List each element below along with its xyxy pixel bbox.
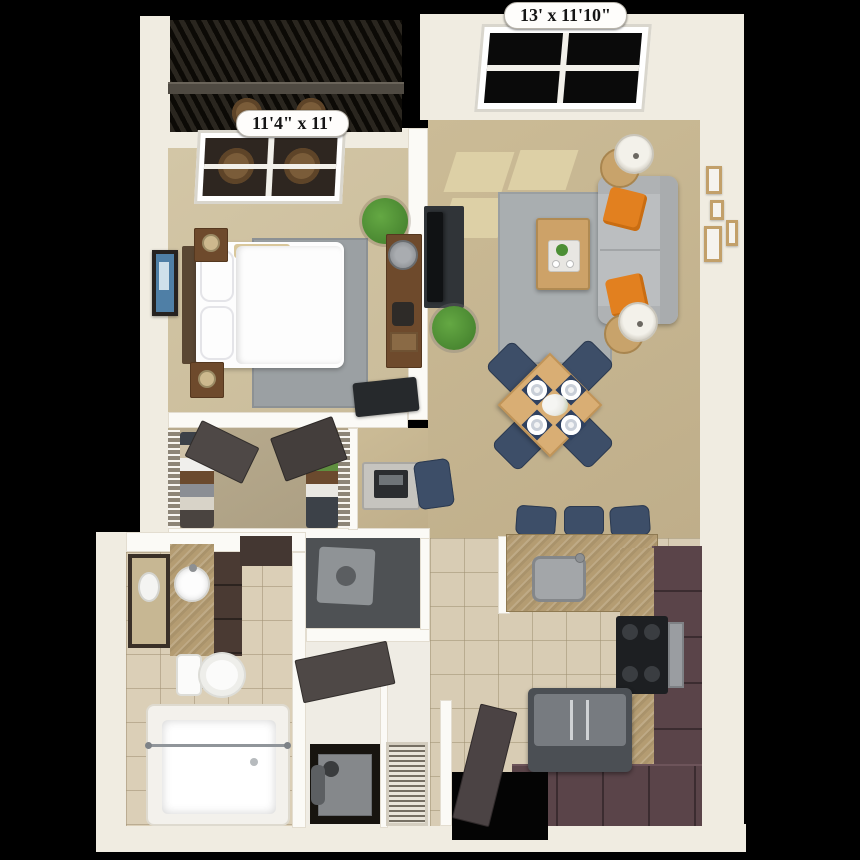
heater-pipe-run <box>311 765 325 805</box>
dinner-plate <box>527 415 547 435</box>
bathtub-drain <box>250 758 258 766</box>
louvered-closet-door <box>386 742 428 826</box>
left-wall-lower <box>96 532 126 828</box>
bottom-wall <box>96 824 746 852</box>
nook-chair <box>413 458 455 511</box>
refrigerator-top <box>534 694 626 746</box>
dresser-lamp <box>388 240 418 270</box>
art-highlight <box>159 262 169 290</box>
hall-west-wall <box>420 538 430 630</box>
wall-frame <box>726 220 738 246</box>
vanity-cabinet-column <box>214 552 242 656</box>
coffee-table <box>536 218 590 290</box>
entry-left-wall <box>440 700 452 826</box>
bedroom-dimension-text: 11'4" x 11' <box>252 113 333 133</box>
bedroom-tv <box>352 377 419 418</box>
living-plant <box>432 306 476 350</box>
living-room-dimension-text: 13' x 11'10" <box>520 5 611 25</box>
rod-end <box>145 742 152 749</box>
balcony-left-wall <box>140 16 170 134</box>
window-mullion <box>204 164 336 169</box>
bar-stool <box>564 506 604 536</box>
refrigerator-handle <box>570 700 573 740</box>
dresser-tray <box>390 332 418 352</box>
bed-pillow <box>200 306 234 360</box>
sofa-backrest <box>660 176 678 324</box>
bedroom-dimension-label: 11'4" x 11' <box>236 110 349 137</box>
bar-stool <box>609 505 651 538</box>
washer-drum <box>335 565 356 586</box>
bathtub <box>146 704 290 826</box>
living-tv <box>427 212 443 302</box>
washer-closet <box>306 538 420 628</box>
bathtub-basin <box>162 720 276 814</box>
wall-frame <box>704 226 722 262</box>
lamp-finial <box>633 153 639 159</box>
washer-lid <box>317 547 376 606</box>
bedroom-wall-art <box>152 250 178 316</box>
kitchen-sink <box>532 556 586 602</box>
bed-duvet <box>236 246 342 364</box>
utility-top-wall <box>306 628 430 642</box>
wall-frame <box>706 166 722 194</box>
balcony-railing <box>168 82 404 94</box>
sofa-cushion-seam <box>600 249 660 251</box>
nightstand-lamp <box>202 234 220 252</box>
water-heater <box>318 754 372 816</box>
lamp-finial <box>637 321 643 327</box>
right-wall <box>700 14 744 852</box>
sink-faucet <box>189 564 197 572</box>
dinner-plate <box>561 415 581 435</box>
wall-frame <box>710 200 724 220</box>
vanity-upper-cabinet <box>240 536 292 566</box>
nightstand-lamp <box>198 370 216 388</box>
tray-plant <box>556 244 568 256</box>
burner <box>622 666 638 682</box>
mirror-sink-reflection <box>138 572 160 602</box>
bar-stool <box>515 505 557 538</box>
burner <box>644 666 660 682</box>
toilet-bowl <box>198 652 246 698</box>
window-mullion <box>487 65 640 71</box>
burner <box>644 624 660 640</box>
tray-cup <box>566 260 574 268</box>
refrigerator <box>528 688 632 772</box>
heater-pipe <box>323 761 339 777</box>
floorplan-stage: 13' x 11'10" 11'4" x 11' <box>0 0 860 860</box>
closet-shelf-left <box>168 430 180 528</box>
bathroom-mirror <box>128 554 170 648</box>
bedroom-window <box>194 130 346 204</box>
tray-cup <box>552 260 560 268</box>
sink-faucet <box>575 553 585 563</box>
living-room-window <box>474 24 652 112</box>
nook-laptop <box>374 470 408 498</box>
dresser-chair <box>392 302 414 326</box>
bathroom-sink <box>174 566 210 602</box>
table-lamp <box>614 134 654 174</box>
rod-end <box>284 742 291 749</box>
shower-rod <box>148 744 288 747</box>
kitchen-counter-run <box>620 548 654 616</box>
laptop-screen <box>379 475 403 485</box>
flower-centerpiece <box>542 394 568 416</box>
burner <box>622 624 638 640</box>
living-room-dimension-label: 13' x 11'10" <box>504 2 627 29</box>
table-lamp <box>618 302 658 342</box>
oven-door <box>668 622 684 688</box>
left-wall-upper <box>140 128 168 538</box>
range-cooktop <box>616 616 668 694</box>
refrigerator-handle <box>586 700 589 740</box>
